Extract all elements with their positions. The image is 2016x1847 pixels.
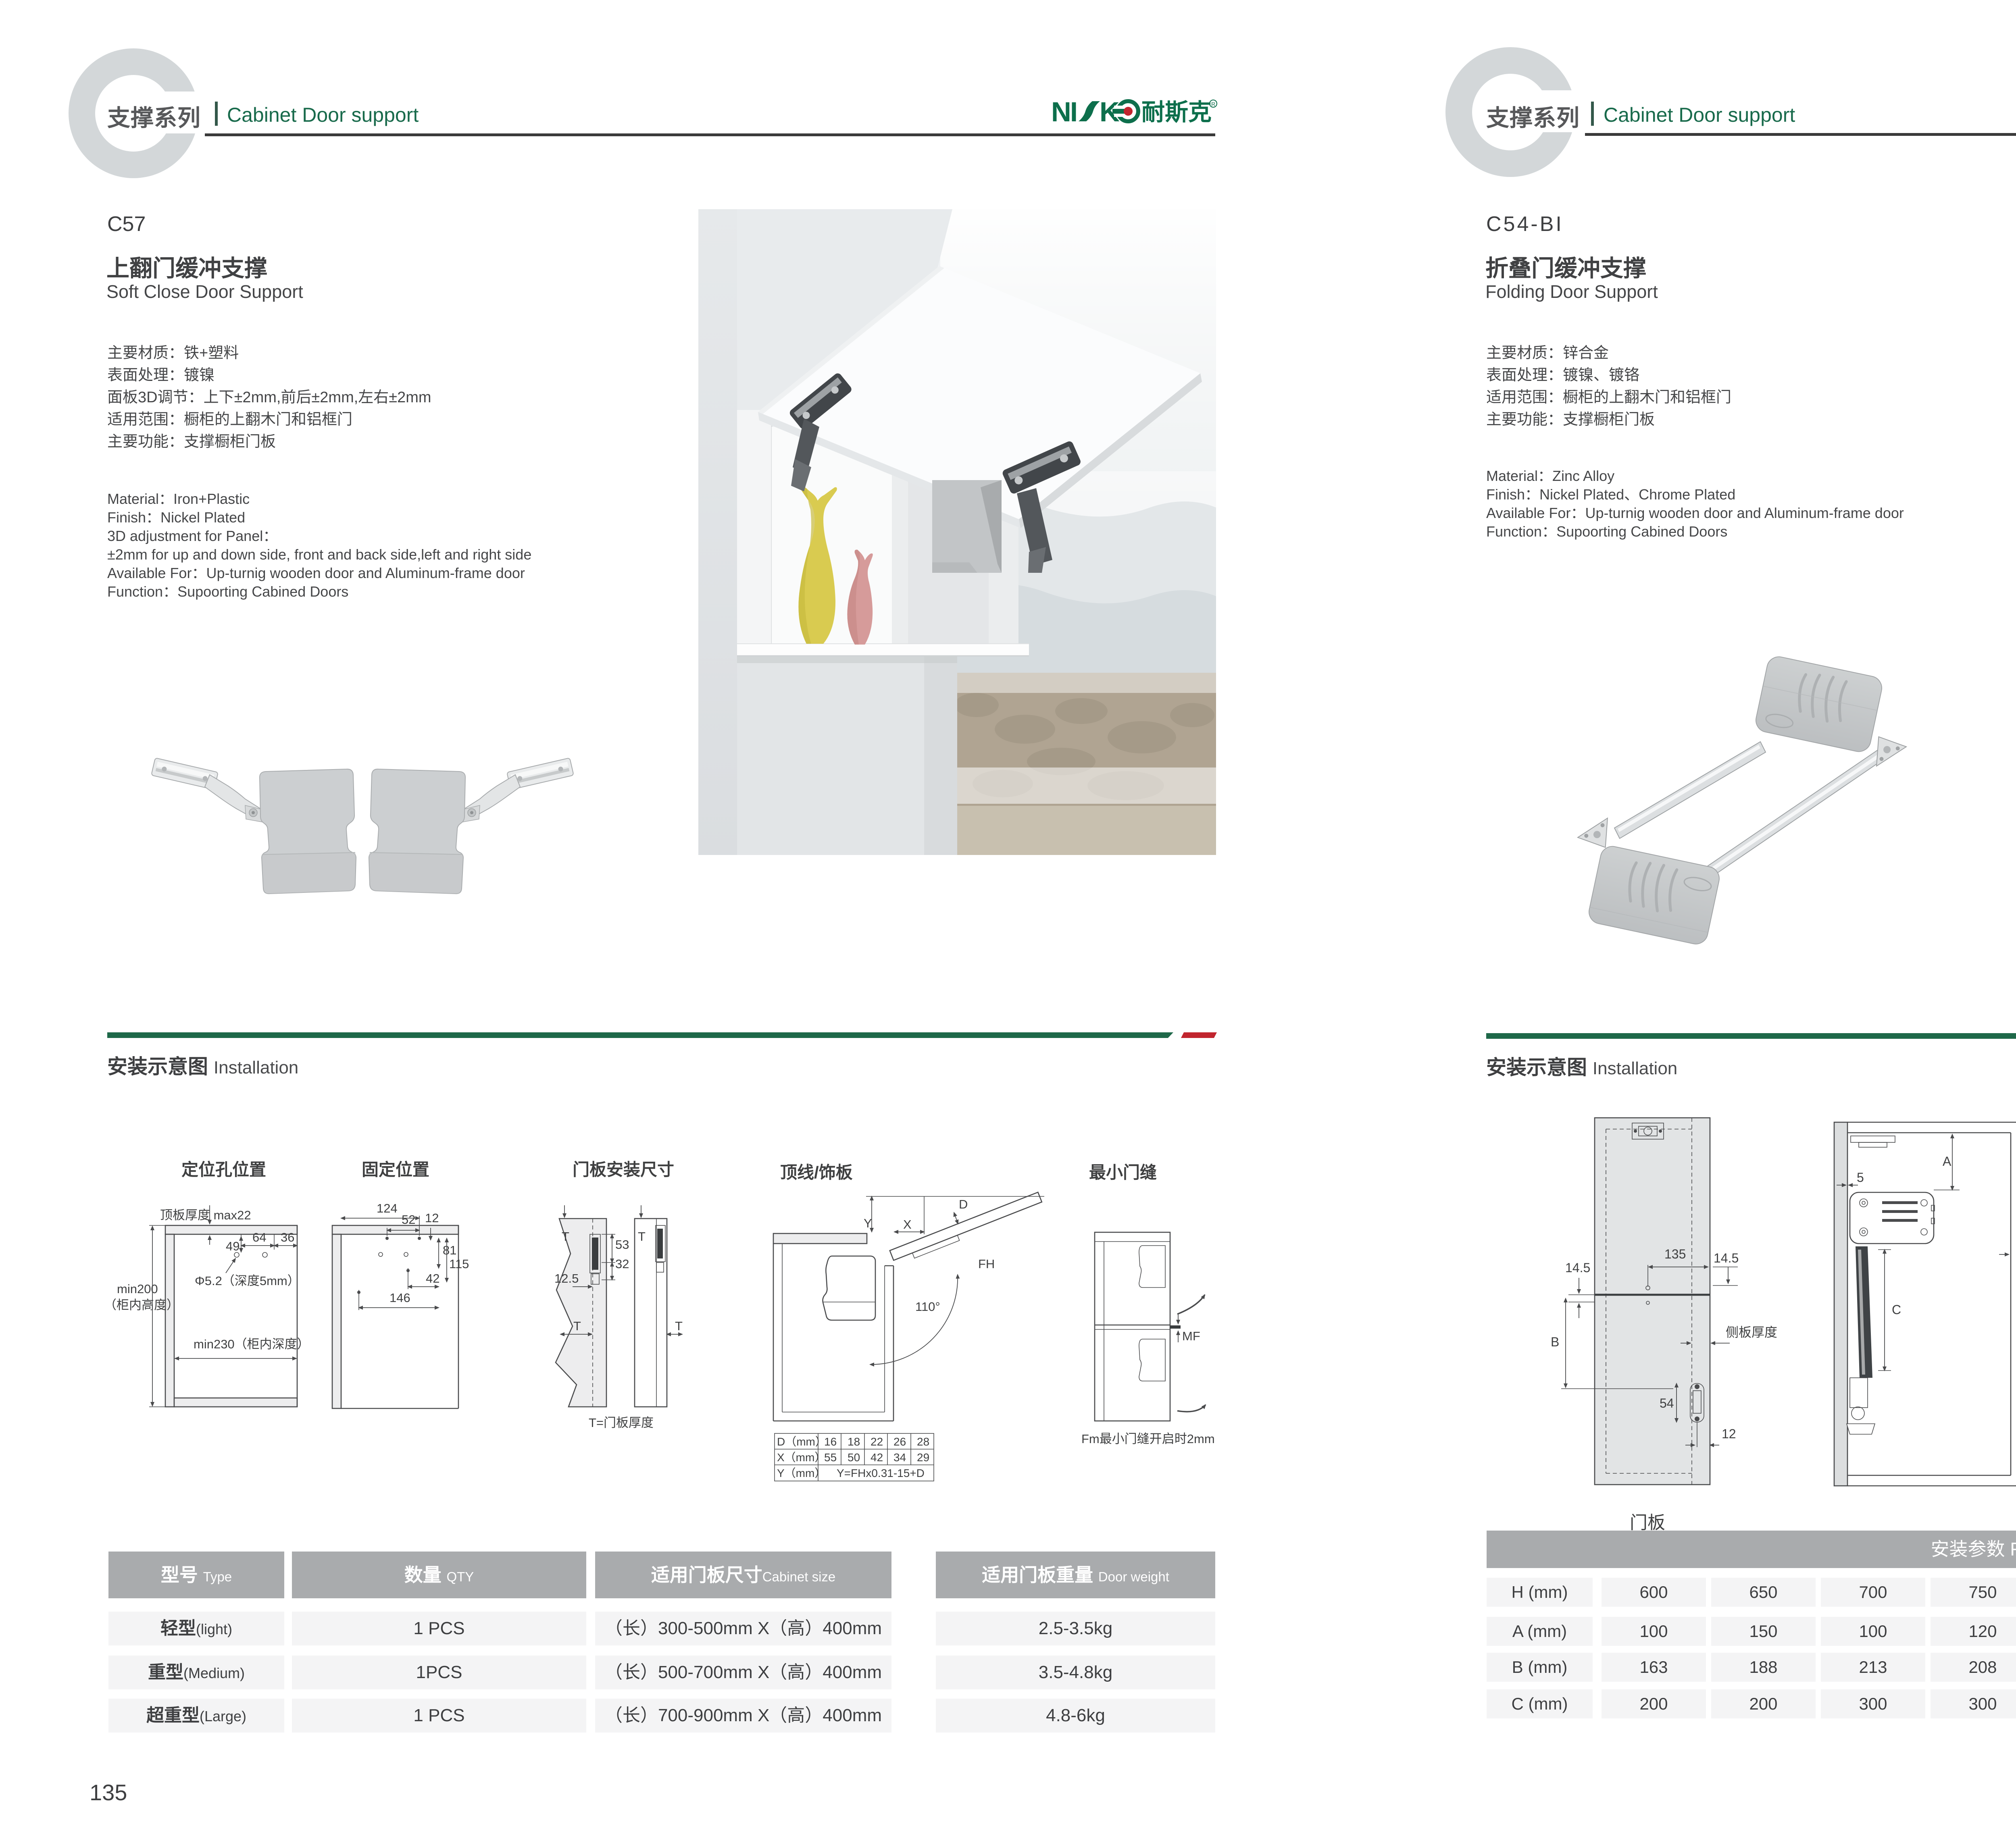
svg-text:T: T	[573, 1319, 581, 1333]
svg-text:14.5: 14.5	[1714, 1251, 1739, 1265]
svg-text:135: 135	[1664, 1247, 1686, 1261]
svg-text:42: 42	[871, 1451, 883, 1464]
svg-text:26: 26	[893, 1435, 906, 1448]
svg-text:X: X	[903, 1217, 912, 1231]
svg-text:12.5: 12.5	[554, 1271, 579, 1285]
svg-text:R: R	[1211, 101, 1215, 107]
svg-text:（柜内高度）: （柜内高度）	[104, 1298, 179, 1312]
svg-text:T: T	[638, 1229, 646, 1244]
svg-text:Y: Y	[864, 1216, 872, 1230]
svg-text:C: C	[1892, 1302, 1901, 1317]
svg-text:T=门板厚度: T=门板厚度	[589, 1416, 654, 1430]
svg-text:12: 12	[1722, 1427, 1736, 1441]
svg-text:81: 81	[443, 1243, 456, 1257]
svg-text:32: 32	[615, 1257, 629, 1271]
svg-text:A: A	[1943, 1154, 1951, 1169]
svg-text:Y（mm）: Y（mm）	[777, 1467, 826, 1479]
svg-text:D: D	[959, 1197, 968, 1211]
svg-text:最小门缝: 最小门缝	[1089, 1163, 1157, 1182]
svg-text:49: 49	[226, 1239, 240, 1253]
svg-text:min200: min200	[117, 1282, 158, 1296]
svg-text:MF: MF	[1182, 1329, 1200, 1343]
svg-text:64: 64	[252, 1230, 266, 1244]
svg-text:12: 12	[425, 1211, 439, 1225]
svg-text:36: 36	[281, 1230, 294, 1244]
svg-text:X（mm）: X（mm）	[777, 1451, 826, 1464]
svg-text:B: B	[1551, 1335, 1559, 1349]
svg-text:50: 50	[848, 1451, 860, 1464]
svg-text:52: 52	[402, 1213, 415, 1227]
svg-text:NI: NI	[1051, 97, 1077, 125]
svg-text:5: 5	[1857, 1170, 1864, 1185]
svg-text:侧板厚度: 侧板厚度	[1726, 1325, 1777, 1339]
svg-text:22: 22	[871, 1435, 883, 1448]
svg-text:29: 29	[917, 1451, 929, 1464]
svg-text:耐斯克: 耐斯克	[1141, 99, 1212, 125]
svg-text:53: 53	[615, 1238, 629, 1252]
svg-text:Fm最小门缝开启时2mm: Fm最小门缝开启时2mm	[1081, 1432, 1215, 1446]
svg-text:T: T	[562, 1229, 569, 1244]
svg-text:54: 54	[1660, 1396, 1674, 1410]
svg-text:115: 115	[449, 1257, 469, 1271]
svg-text:门板: 门板	[1630, 1513, 1665, 1532]
svg-text:16: 16	[824, 1435, 837, 1448]
svg-text:34: 34	[893, 1451, 906, 1464]
svg-text:28: 28	[917, 1435, 929, 1448]
svg-text:门板安装尺寸: 门板安装尺寸	[573, 1160, 674, 1179]
svg-text:124: 124	[377, 1201, 398, 1215]
svg-text:FH: FH	[978, 1257, 995, 1271]
svg-text:定位孔位置: 定位孔位置	[181, 1160, 266, 1179]
svg-text:固定位置: 固定位置	[362, 1160, 429, 1179]
svg-text:顶线/饰板: 顶线/饰板	[780, 1163, 853, 1182]
svg-text:Y=FHx0.31-15+D: Y=FHx0.31-15+D	[837, 1467, 925, 1479]
svg-text:Φ5.2（深度5mm）: Φ5.2（深度5mm）	[195, 1274, 300, 1288]
svg-text:D（mm）: D（mm）	[777, 1435, 827, 1448]
svg-text:55: 55	[824, 1451, 837, 1464]
svg-text:110°: 110°	[915, 1300, 940, 1314]
svg-text:min230（柜内深度）: min230（柜内深度）	[194, 1337, 310, 1351]
svg-text:18: 18	[848, 1435, 860, 1448]
svg-text:T: T	[675, 1319, 683, 1333]
svg-text:42: 42	[426, 1271, 439, 1285]
svg-text:顶板厚度 max22: 顶板厚度 max22	[160, 1208, 251, 1222]
svg-text:146: 146	[389, 1291, 410, 1305]
svg-text:14.5: 14.5	[1565, 1260, 1590, 1275]
